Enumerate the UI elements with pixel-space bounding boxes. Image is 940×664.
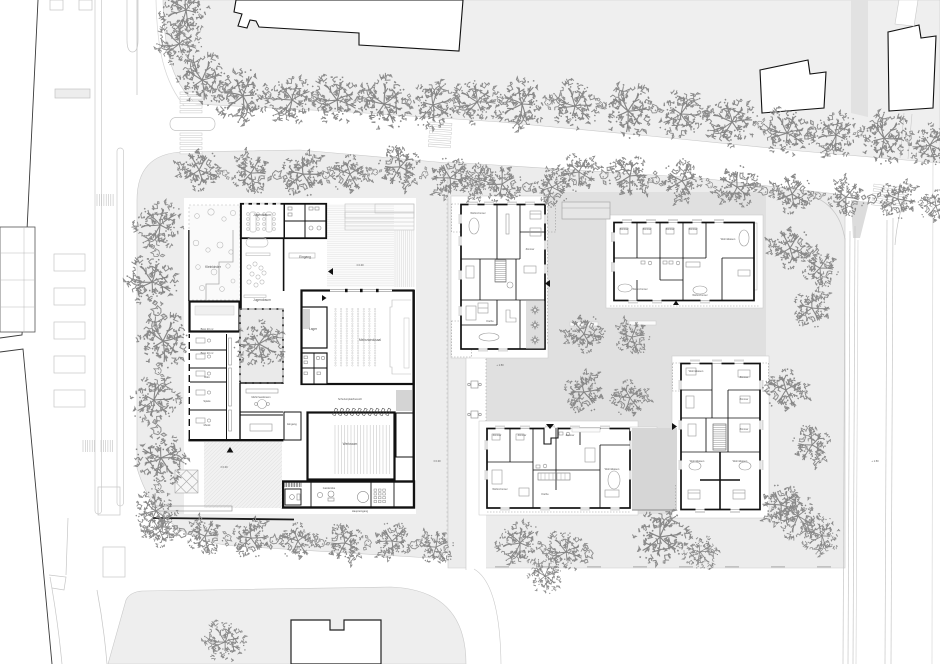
svg-text:Büro 20 m²: Büro 20 m² — [201, 327, 214, 331]
svg-text:Zimmer: Zimmer — [566, 433, 575, 437]
svg-text:Zimmer: Zimmer — [620, 227, 629, 231]
svg-text:Eingang: Eingang — [299, 255, 311, 259]
svg-text:Küche: Küche — [486, 319, 494, 323]
svg-text:Büro 20 m²: Büro 20 m² — [201, 351, 214, 355]
svg-text:Zimmer: Zimmer — [689, 227, 698, 231]
svg-text:Wohn/Essen: Wohn/Essen — [721, 237, 736, 241]
svg-text:Zimmer: Zimmer — [526, 247, 535, 251]
svg-text:Wohnzimmer: Wohnzimmer — [692, 293, 707, 297]
svg-text:Mehrzweckraum: Mehrzweckraum — [251, 395, 270, 399]
svg-text:Garderobe: Garderobe — [323, 486, 336, 490]
svg-text:Wohn/Essen: Wohn/Essen — [690, 459, 705, 463]
svg-text:+ 1.50: + 1.50 — [496, 363, 504, 367]
svg-text:Wohnzimmer: Wohnzimmer — [492, 487, 507, 491]
svg-text:± 0.00: ± 0.00 — [433, 459, 441, 463]
svg-text:Wohn/Essen: Wohn/Essen — [605, 467, 620, 471]
svg-text:Schulvorplatzbereich: Schulvorplatzbereich — [338, 397, 363, 401]
svg-text:+ 1.50: + 1.50 — [871, 459, 879, 463]
svg-text:Lager: Lager — [309, 327, 318, 331]
svg-text:Haupteingang: Haupteingang — [352, 509, 369, 513]
svg-text:± 0.00: ± 0.00 — [220, 465, 228, 469]
svg-text:Jugendraum: Jugendraum — [253, 213, 271, 217]
svg-text:Jugendraum: Jugendraum — [253, 298, 271, 302]
svg-text:Zimmer: Zimmer — [740, 375, 749, 379]
svg-text:Zimmer: Zimmer — [666, 227, 675, 231]
svg-text:Zimmer: Zimmer — [643, 227, 652, 231]
svg-text:Mehrzwecksaal: Mehrzwecksaal — [359, 338, 381, 342]
svg-text:Werkraum: Werkraum — [343, 442, 358, 446]
svg-text:Küche: Küche — [541, 492, 549, 496]
svg-text:Zimmer: Zimmer — [518, 433, 527, 437]
svg-text:± 0.00: ± 0.00 — [356, 263, 364, 267]
svg-text:Spiele: Spiele — [203, 399, 211, 403]
svg-text:Zimmer: Zimmer — [493, 433, 502, 437]
svg-text:Zimmer: Zimmer — [740, 397, 749, 401]
svg-text:Wohn/Essen: Wohn/Essen — [733, 459, 748, 463]
svg-text:Kleinkinder: Kleinkinder — [205, 265, 222, 269]
svg-text:Wohnzimmer: Wohnzimmer — [470, 211, 485, 215]
svg-text:Wohnzimmer: Wohnzimmer — [632, 287, 647, 291]
svg-text:Musik: Musik — [204, 423, 211, 427]
svg-text:Wohn/Essen: Wohn/Essen — [689, 369, 704, 373]
svg-text:Zimmer: Zimmer — [740, 427, 749, 431]
svg-text:Eingang: Eingang — [287, 422, 297, 426]
svg-text:Büro: Büro — [204, 375, 210, 379]
